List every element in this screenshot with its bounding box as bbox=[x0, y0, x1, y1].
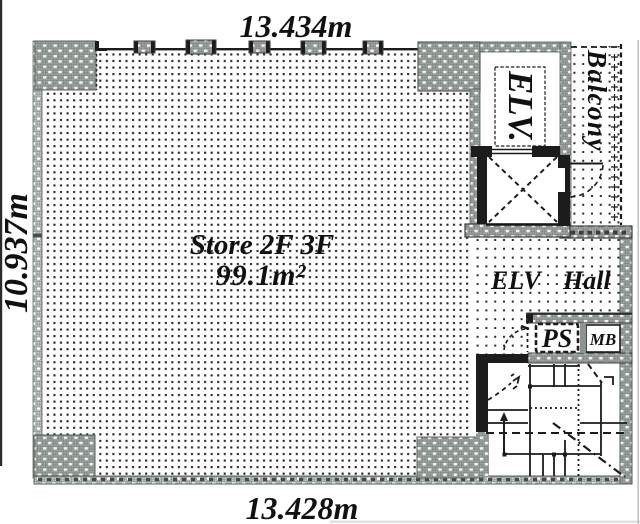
svg-text:PS: PS bbox=[541, 324, 572, 353]
svg-text:Hall: Hall bbox=[562, 266, 611, 295]
svg-text:13.434m: 13.434m bbox=[240, 8, 353, 44]
svg-text:Store 2F 3F: Store 2F 3F bbox=[190, 229, 335, 261]
svg-text:99.1m²: 99.1m² bbox=[216, 259, 307, 292]
svg-text:10.937m: 10.937m bbox=[0, 193, 35, 313]
svg-text:ELV.: ELV. bbox=[501, 70, 540, 142]
svg-text:MB: MB bbox=[589, 330, 616, 349]
svg-text:ELV: ELV bbox=[490, 266, 543, 295]
svg-text:13.428m: 13.428m bbox=[246, 490, 359, 524]
svg-text:Balcony: Balcony bbox=[582, 49, 612, 152]
